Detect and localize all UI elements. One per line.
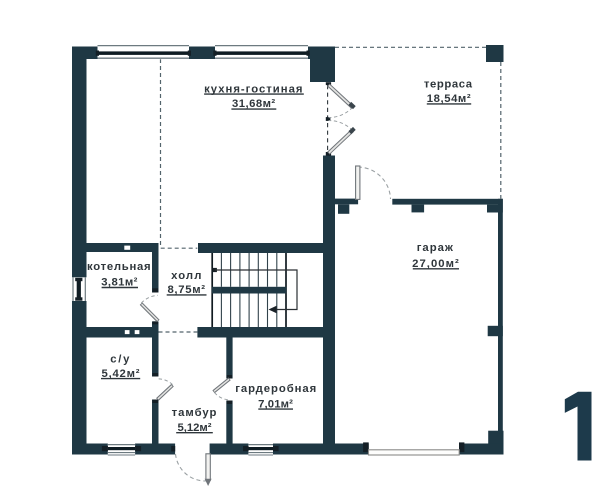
svg-text:31,68м²: 31,68м² [232, 98, 276, 110]
svg-text:тамбур: тамбур [172, 407, 218, 419]
svg-text:27,00м²: 27,00м² [412, 258, 460, 270]
svg-text:18,54м²: 18,54м² [427, 93, 471, 105]
svg-text:холл: холл [171, 270, 202, 282]
svg-text:котельная: котельная [87, 261, 151, 273]
svg-text:терраса: терраса [424, 78, 473, 90]
svg-text:гараж: гараж [417, 242, 454, 254]
svg-text:гардеробная: гардеробная [235, 383, 317, 395]
svg-text:с/у: с/у [110, 354, 131, 366]
